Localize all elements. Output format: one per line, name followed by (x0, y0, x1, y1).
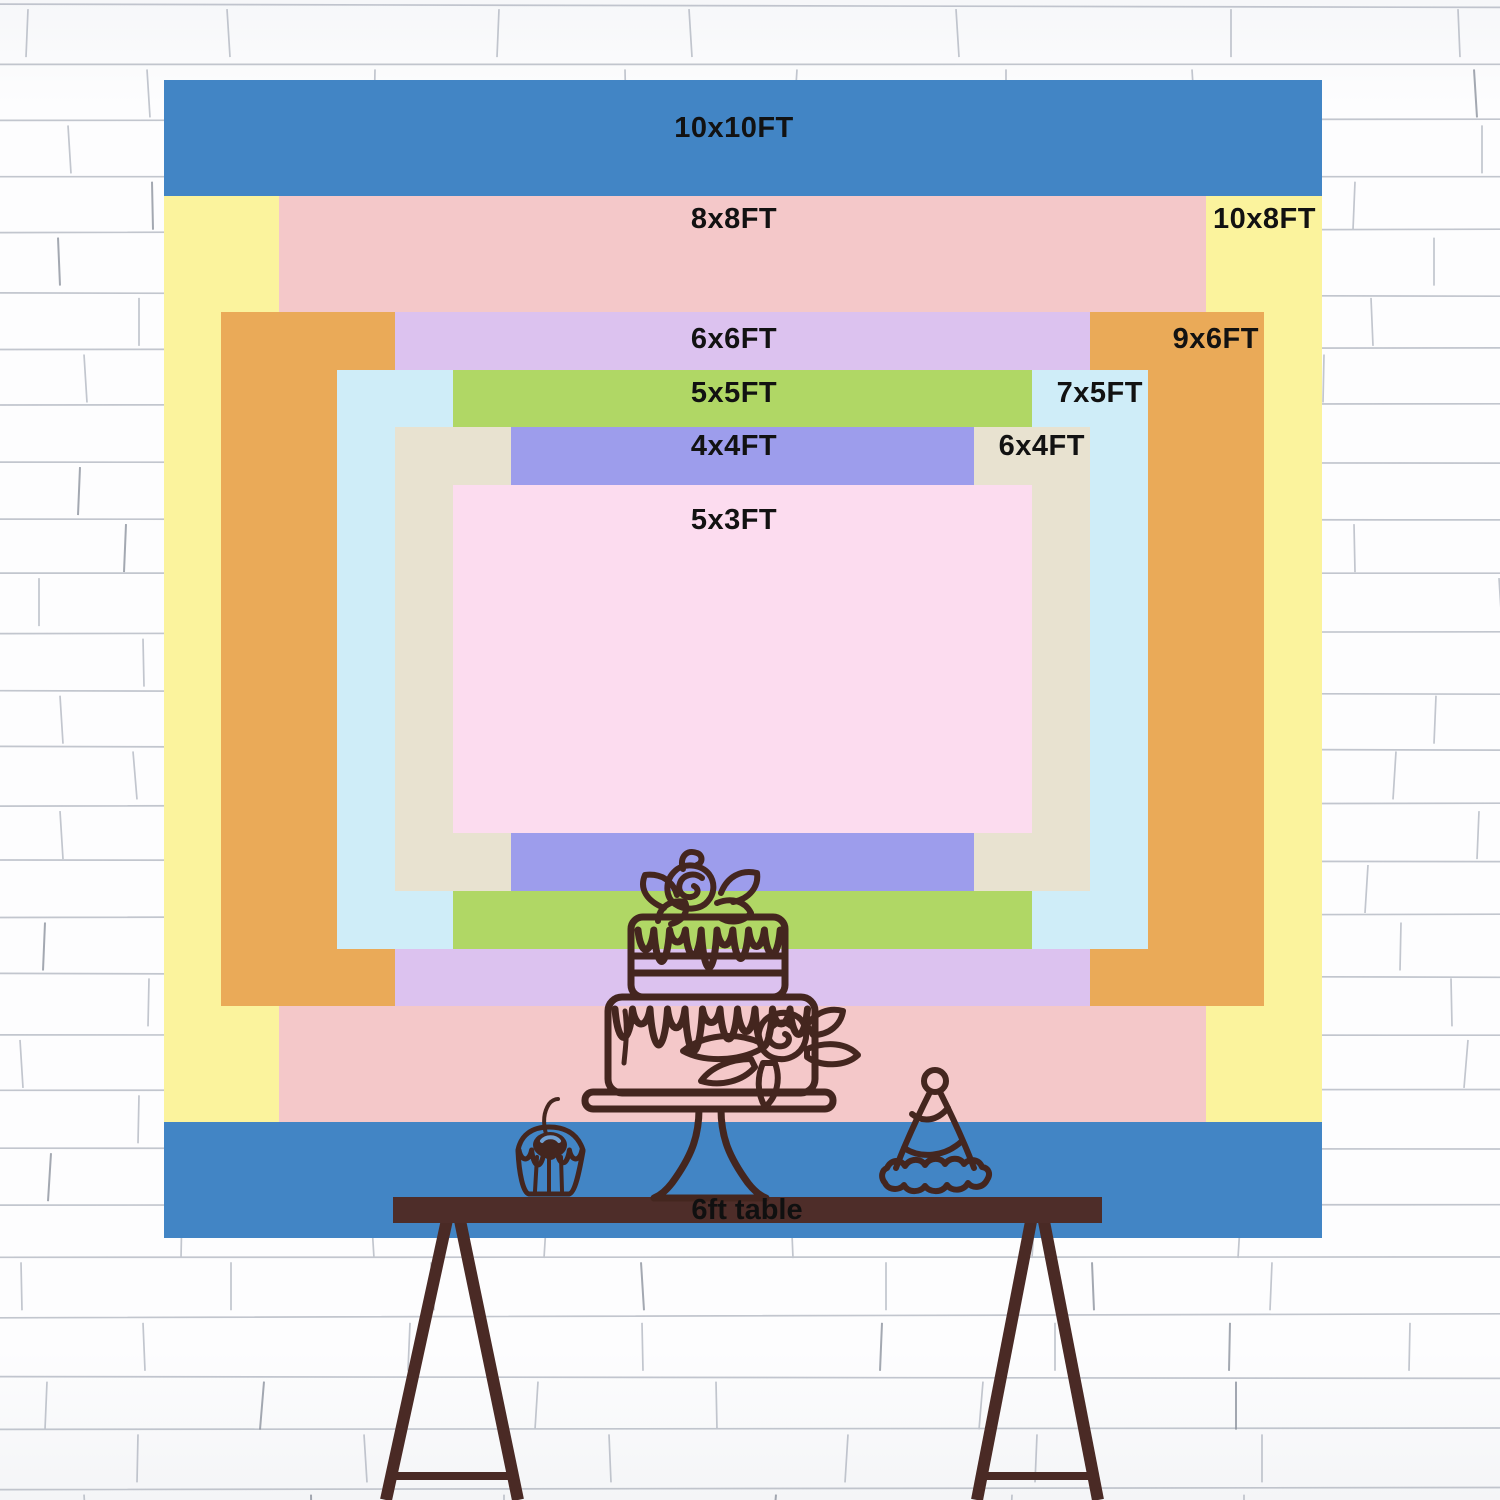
size-label-6x4ft: 6x4FT (999, 428, 1085, 464)
size-label-5x3ft: 5x3FT (624, 502, 844, 538)
size-label-5x5ft: 5x5FT (624, 375, 844, 411)
size-label-6x6ft: 6x6FT (624, 321, 844, 357)
backdrop-size-chart: 10x10FT10x8FT8x8FT9x6FT6x6FT7x5FT5x5FT6x… (0, 0, 1500, 1500)
table-size-label: 6ft table (597, 1192, 897, 1228)
size-label-10x8ft: 10x8FT (1213, 201, 1316, 237)
size-label-4x4ft: 4x4FT (624, 428, 844, 464)
size-label-10x10ft: 10x10FT (624, 110, 844, 146)
size-label-8x8ft: 8x8FT (624, 201, 844, 237)
size-label-9x6ft: 9x6FT (1173, 321, 1259, 357)
size-label-7x5ft: 7x5FT (1057, 375, 1143, 411)
